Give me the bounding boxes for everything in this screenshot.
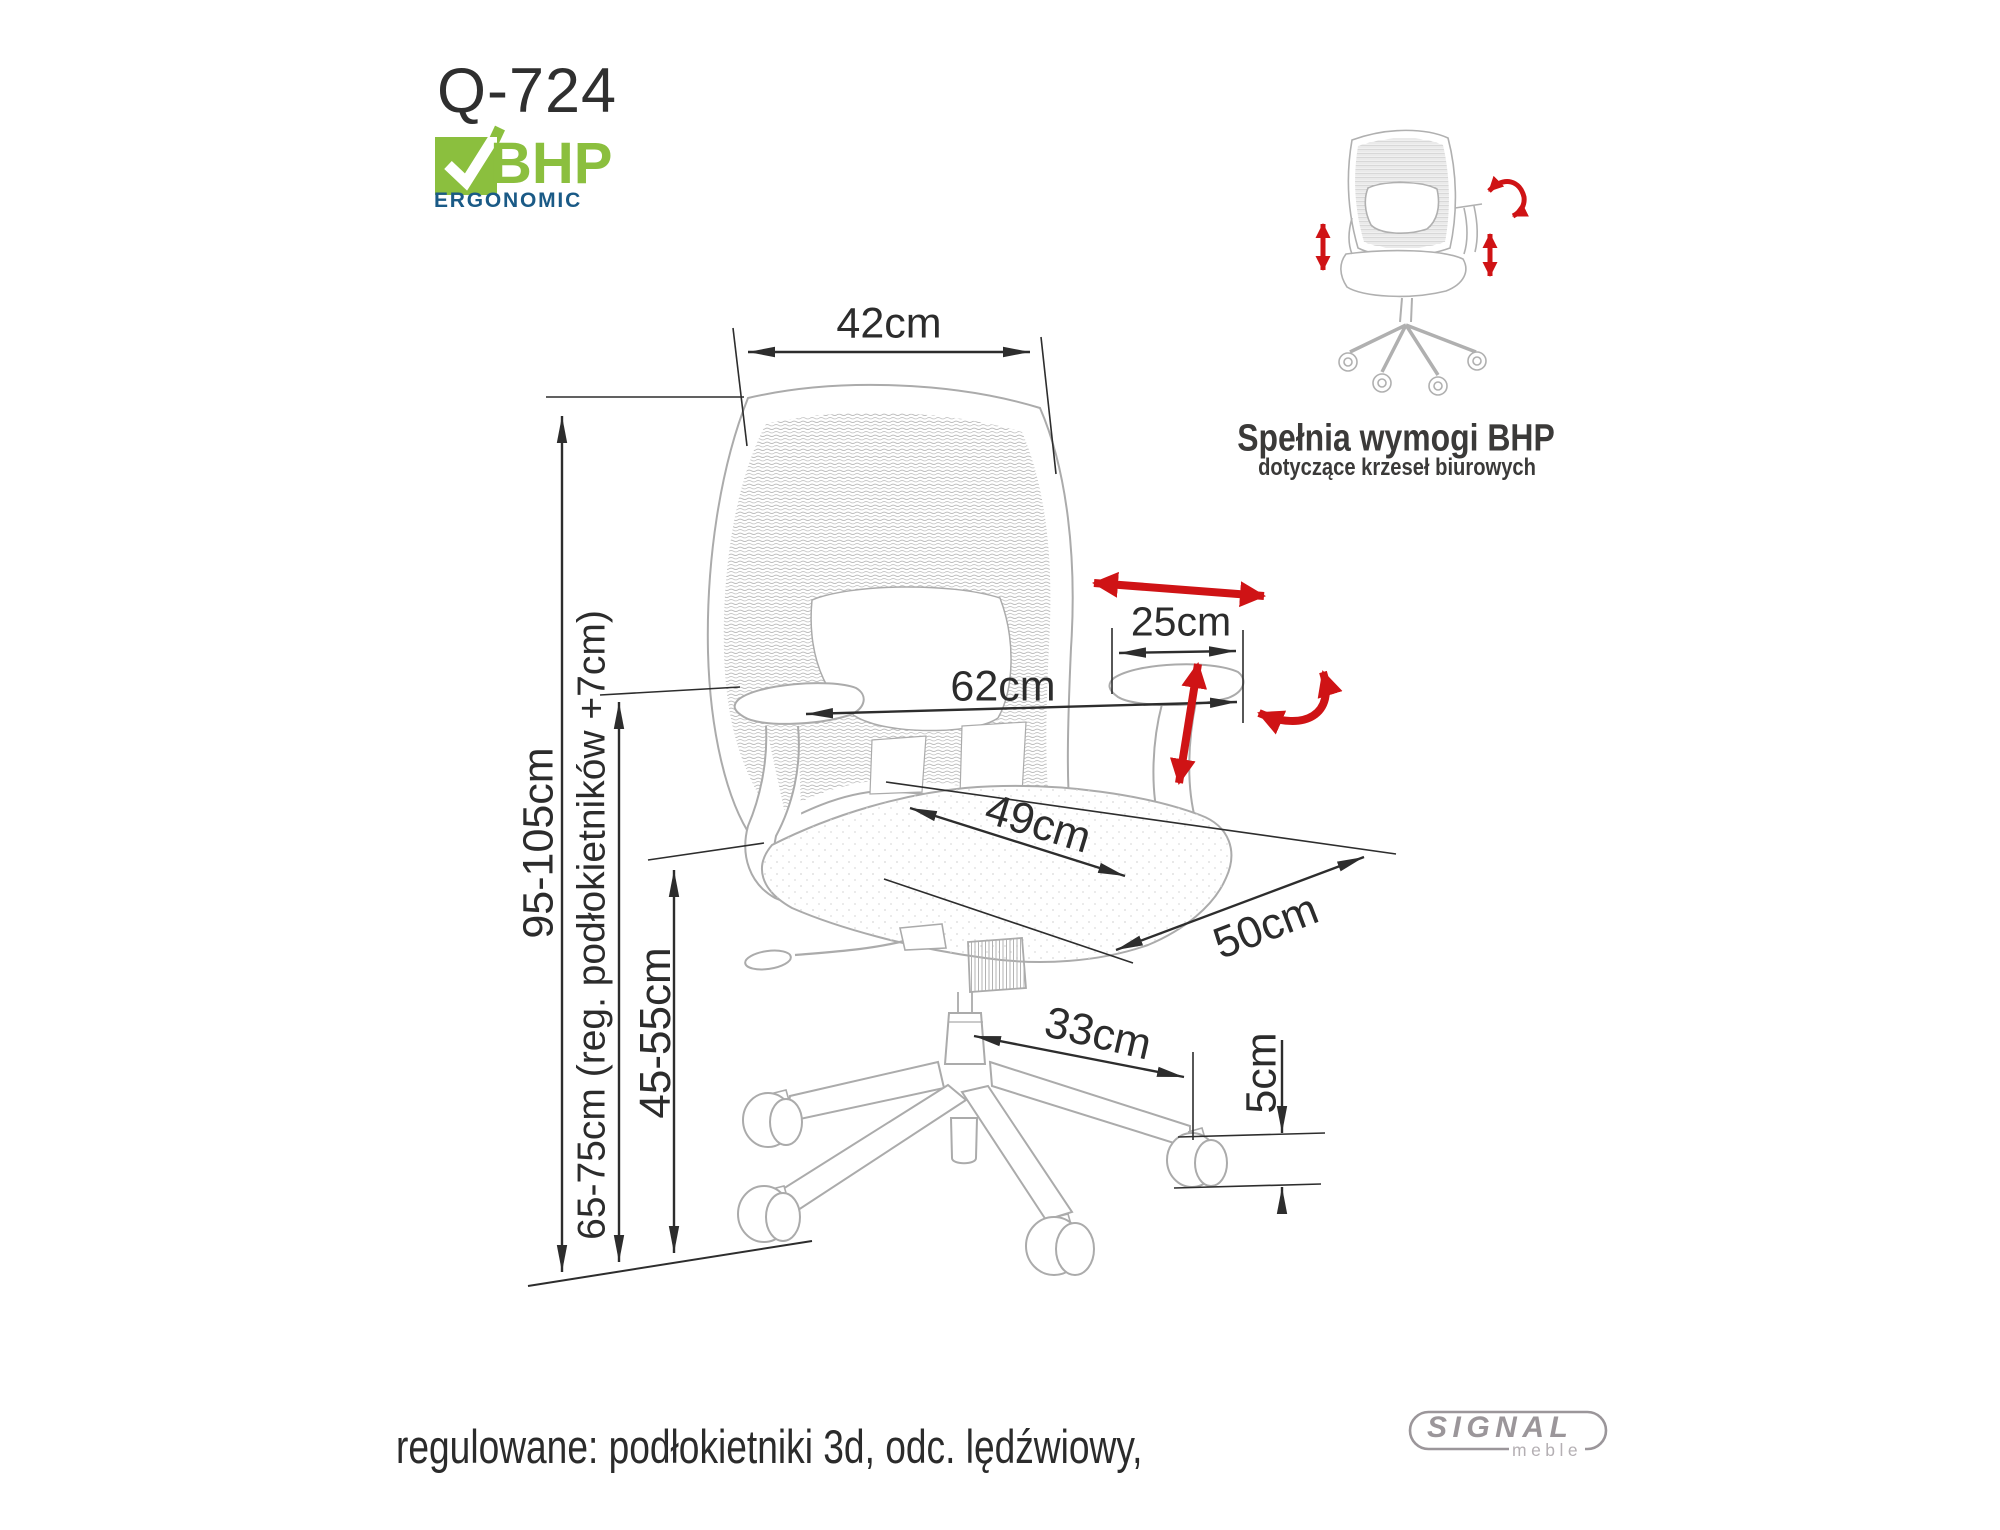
bhp-badge-subtitle: ERGONOMIC	[434, 190, 582, 211]
product-code: Q-724	[437, 55, 617, 127]
chair-dimension-drawing	[0, 0, 2000, 1530]
dim-caster-height-label: 5cm	[1241, 1032, 1284, 1113]
brand-name: SIGNAL	[1427, 1413, 1573, 1443]
compliance-subtitle: dotyczące krzeseł biurowych	[1258, 454, 1536, 482]
dim-total-height-label: 95-105cm	[518, 747, 561, 938]
brand-subtitle: meble	[1509, 1442, 1585, 1460]
bhp-badge-name: BHP	[490, 135, 612, 193]
product-dimension-sheet: Q-724 BHP ERGONOMIC Spełnia wymogi BHP d…	[0, 0, 2000, 1530]
dim-armrest-pad-length-label: 25cm	[1131, 602, 1231, 643]
dim-overall-width-label: 62cm	[950, 666, 1055, 709]
dim-armrest-height-label: 65-75cm (reg. podłokietników +7cm)	[573, 610, 612, 1240]
mini-chair-illustration	[1339, 130, 1486, 395]
dim-seat-height-label: 45-55cm	[634, 947, 678, 1118]
adjustability-caption: regulowane: podłokietniki 3d, odc. lędźw…	[396, 1419, 1142, 1474]
dim-backrest-width-label: 42cm	[836, 303, 941, 346]
